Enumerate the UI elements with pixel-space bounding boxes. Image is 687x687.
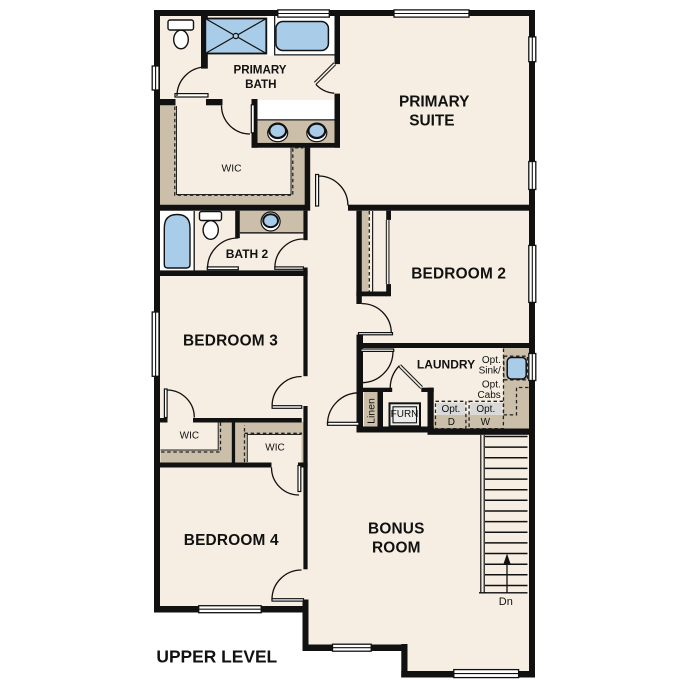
svg-text:D: D: [448, 417, 455, 428]
svg-text:ROOM: ROOM: [372, 540, 421, 557]
svg-text:BEDROOM 3: BEDROOM 3: [183, 333, 278, 350]
svg-text:BATH: BATH: [245, 78, 276, 91]
svg-text:Opt.: Opt.: [476, 404, 495, 415]
svg-text:FURN: FURN: [391, 409, 419, 420]
svg-text:Sink/: Sink/: [479, 365, 501, 376]
svg-text:BEDROOM 4: BEDROOM 4: [184, 532, 279, 549]
svg-text:LAUNDRY: LAUNDRY: [417, 357, 475, 371]
svg-text:Linen: Linen: [365, 398, 377, 424]
svg-text:BEDROOM 2: BEDROOM 2: [411, 265, 506, 282]
svg-text:Dn: Dn: [499, 596, 513, 608]
svg-text:PRIMARY: PRIMARY: [399, 93, 470, 110]
svg-text:BATH 2: BATH 2: [226, 247, 269, 261]
svg-text:BONUS: BONUS: [368, 521, 425, 538]
svg-text:Opt.: Opt.: [482, 355, 501, 366]
svg-text:Opt.: Opt.: [441, 404, 460, 415]
svg-text:Cabs: Cabs: [477, 390, 500, 401]
svg-text:Opt.: Opt.: [482, 380, 501, 391]
svg-text:WIC: WIC: [180, 431, 199, 442]
svg-text:PRIMARY: PRIMARY: [233, 64, 286, 77]
svg-text:WIC: WIC: [221, 164, 242, 175]
svg-text:SUITE: SUITE: [409, 113, 454, 130]
svg-text:WIC: WIC: [265, 442, 284, 453]
svg-text:UPPER LEVEL: UPPER LEVEL: [156, 647, 277, 667]
svg-text:W: W: [481, 417, 491, 428]
